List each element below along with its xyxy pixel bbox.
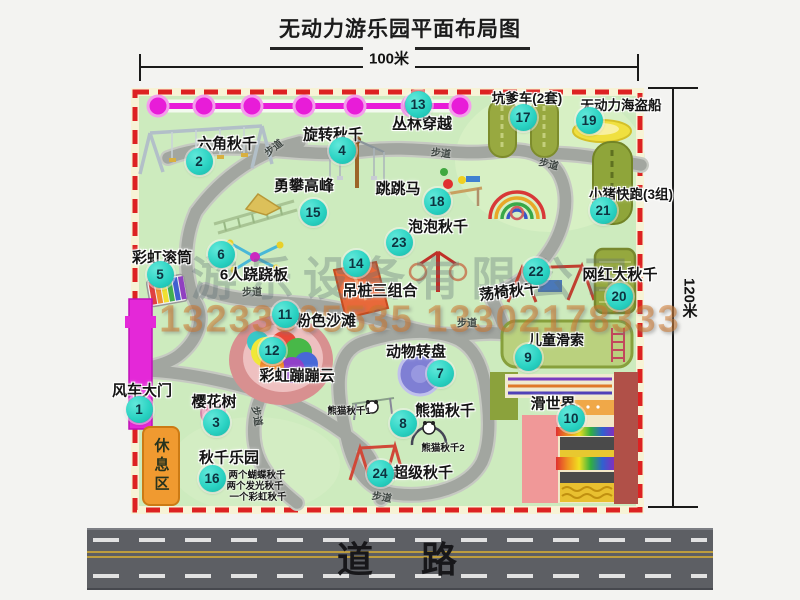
badge-peak-climbing: 15	[300, 199, 327, 226]
footpath-tag: 步道	[249, 405, 267, 427]
label-panda-swing-1: 熊猫秋千1	[327, 403, 370, 417]
badge-panda-swing: 8	[390, 410, 417, 437]
road: 道 路	[87, 528, 713, 590]
label-pink-beach: 粉色沙滩	[296, 310, 356, 331]
badge-swing-park: 16	[199, 465, 226, 492]
badge-rocking-chair-swing: 22	[523, 258, 550, 285]
badge-rainbow-bounce-cloud: 12	[259, 337, 286, 364]
footpath-tag: 步道	[242, 284, 262, 299]
badge-hanging-pile-combo: 14	[343, 250, 370, 277]
label-swing-park: 秋千乐园	[199, 447, 259, 468]
badge-six-person-seesaw: 6	[208, 241, 235, 268]
label-panda-swing: 熊猫秋千	[415, 400, 475, 421]
badge-rotating-swing: 4	[329, 137, 356, 164]
label-big-swing: 网红大秋千	[582, 264, 657, 285]
badge-super-swing: 24	[367, 460, 394, 487]
badge-pirate-ship: 19	[576, 107, 603, 134]
footpath-tag: 步道	[371, 487, 393, 505]
badge-cherry-tree: 3	[203, 409, 230, 436]
badge-rainbow-roller: 5	[147, 261, 174, 288]
height-dimension-label: 120米	[678, 272, 701, 324]
label-six-person-seesaw: 6人跷跷板	[220, 264, 288, 285]
badge-windmill-gate: 1	[126, 396, 153, 423]
label-peak-climbing: 勇攀高峰	[274, 175, 334, 196]
label-bubble-swing: 泡泡秋千	[408, 216, 468, 237]
badge-piggy-run: 21	[590, 197, 617, 224]
badge-animal-carousel: 7	[427, 360, 454, 387]
label-swing-park-item-3: 一个彩虹秋千	[229, 489, 286, 503]
label-animal-carousel: 动物转盘	[386, 341, 446, 362]
badge-big-swing: 20	[606, 283, 633, 310]
badge-jungle-crossing: 13	[405, 91, 432, 118]
badge-slide-world: 10	[558, 405, 585, 432]
label-hanging-pile-combo: 吊桩三组合	[342, 280, 417, 301]
badge-hex-swing: 2	[186, 148, 213, 175]
badge-kids-zipline: 9	[515, 344, 542, 371]
label-rest-area: 休息区	[151, 438, 172, 495]
footpath-tag: 步道	[430, 143, 451, 160]
label-jumping-horse: 跳跳马	[375, 178, 420, 199]
badge-bubble-swing: 23	[386, 229, 413, 256]
footpath-tag: 步道	[457, 315, 477, 330]
label-rainbow-bounce-cloud: 彩虹蹦蹦云	[259, 365, 334, 386]
badge-jumping-horse: 18	[424, 188, 451, 215]
page-title: 无动力游乐园平面布局图	[270, 13, 530, 50]
width-dimension-label: 100米	[363, 47, 415, 70]
road-label: 道 路	[337, 531, 463, 583]
park-layout-plan: 无动力游乐园平面布局图 100米 120米 游乐设备有限公司 132338055…	[0, 0, 800, 600]
badge-pink-beach: 11	[272, 301, 299, 328]
label-panda-swing-2: 熊猫秋千2	[421, 440, 464, 454]
badge-kengdie-car: 17	[510, 104, 537, 131]
label-super-swing: 超级秋千	[393, 462, 453, 483]
